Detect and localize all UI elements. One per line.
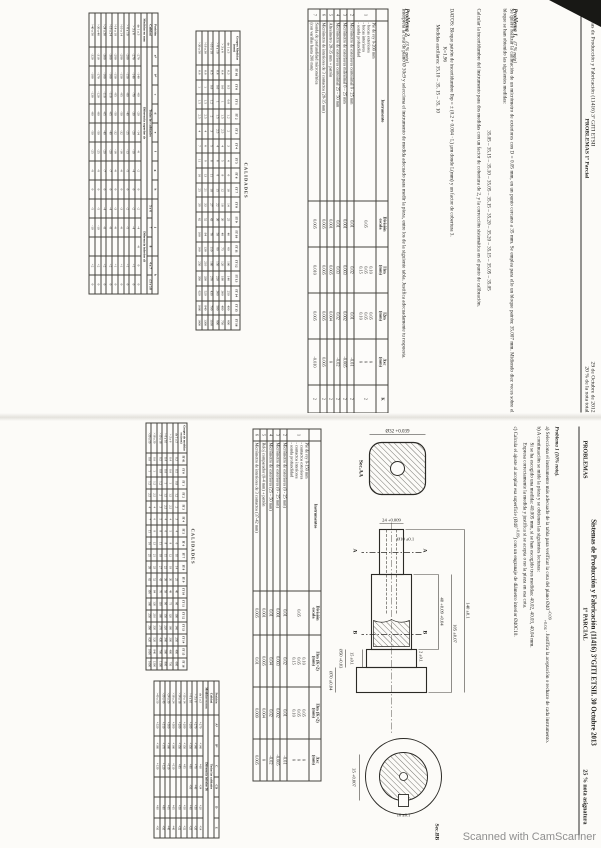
- cell: [129, 237, 135, 256]
- header-cell: I1m (K=2) (mm): [309, 635, 321, 687]
- scan-corner-shadow: [549, 0, 601, 27]
- cell: -50: [117, 104, 123, 123]
- cell: +25: [186, 817, 191, 838]
- cell: +2: [100, 256, 106, 275]
- table-row: >30 a 40-310-170-120-80-50-25-90-5-10+20: [94, 13, 100, 294]
- cell: 840: [201, 300, 207, 315]
- cell: 1: [167, 477, 172, 489]
- cell: 1000: [196, 300, 202, 315]
- cell: +95: [175, 756, 180, 777]
- cell: de 1 a 3: [172, 423, 177, 453]
- cell: 400: [172, 645, 177, 657]
- cell: -4: [135, 218, 141, 237]
- cell: 0: [89, 180, 95, 199]
- cell: +50: [181, 797, 186, 818]
- cell: -0.01: [280, 739, 287, 781]
- cell: -0.010: [307, 339, 319, 385]
- cell: 4: [145, 501, 150, 513]
- cell: -60: [135, 85, 141, 104]
- cell: > 6 a 10: [213, 31, 219, 65]
- header-cell: IT 3: [178, 501, 187, 513]
- dim-label-d40: 40 +0.09 +0.04: [439, 597, 444, 626]
- cell: -14: [135, 123, 141, 142]
- dim-label-d15: 15 ±0.1: [349, 652, 354, 665]
- cell: 0.001: [273, 591, 280, 635]
- cell: 750: [219, 315, 225, 330]
- sec-bb-label: Sec.BB: [433, 823, 439, 840]
- table-row: >18 a 24+300+160+110+65+40: [170, 681, 175, 838]
- cell: 140: [172, 621, 177, 633]
- cell: +1: [123, 256, 129, 275]
- header-cell: Instrumentos: [309, 441, 321, 591]
- table-row: 7Sonda de profundidad micrométrica (con …: [307, 9, 319, 413]
- cut-b-top: B: [421, 630, 427, 634]
- cell: 0.8: [172, 477, 177, 489]
- problema1-2013-item-c: c) Calcula el ajuste al acoplar esa supe…: [511, 426, 521, 838]
- cell: +40: [170, 817, 175, 838]
- problema1-2013-item-b2: Si se ha escogido una medida: 40.005 mm,…: [527, 426, 534, 838]
- cell: 39: [196, 197, 202, 212]
- cell: 3: [340, 9, 347, 21]
- header-cell: IT 13: [178, 621, 187, 633]
- cell: >18 a 24: [170, 681, 175, 715]
- cell: -110: [100, 85, 106, 104]
- cell: 270: [156, 621, 161, 633]
- cell: 21: [151, 549, 156, 561]
- cell: -2: [135, 199, 141, 218]
- cell: 1: [354, 9, 376, 21]
- cell: 100: [145, 585, 150, 597]
- cell: 600: [172, 657, 177, 669]
- cell: 0: [94, 180, 100, 199]
- cell: 70: [156, 585, 161, 597]
- header-cell: I2m (mm): [376, 293, 388, 339]
- dim-label-d105: 105 ±0.07: [452, 624, 457, 643]
- cell: [170, 776, 175, 797]
- cell: 0.001: [340, 201, 347, 247]
- cell: 620: [145, 633, 150, 645]
- cell: 390: [145, 621, 150, 633]
- cell: +300: [170, 715, 175, 736]
- cell: 580: [213, 300, 219, 315]
- header-cell: f: [152, 142, 158, 161]
- cell: -50: [94, 123, 100, 142]
- cell: -290: [117, 47, 123, 66]
- cell: >30 a 40: [159, 681, 164, 715]
- cell: [154, 776, 159, 797]
- cell: 0.8: [224, 94, 230, 109]
- cell: 2: [347, 385, 354, 413]
- cell: 18: [156, 549, 161, 561]
- cell: -120: [94, 85, 100, 104]
- cell: 8: [156, 525, 161, 537]
- cell: 2.5: [219, 123, 225, 138]
- cut-a-top: A: [421, 548, 427, 552]
- cell: 0.05: [354, 201, 376, 247]
- cell: 900: [162, 657, 167, 669]
- cell: -65: [106, 104, 112, 123]
- header-cell: C: [213, 756, 218, 777]
- header-cell: A*: [213, 715, 218, 736]
- cell: +1: [112, 256, 118, 275]
- cell: [100, 237, 106, 256]
- sec-aa-label: Sec.AA: [357, 459, 363, 476]
- cell: 9: [151, 525, 156, 537]
- cell: -80: [123, 85, 129, 104]
- cell: >30 a 50: [145, 423, 150, 453]
- cell: -4: [129, 161, 135, 180]
- cell: >14 a 18: [112, 13, 118, 47]
- cell: 1.2: [224, 109, 230, 124]
- cell: 1600: [196, 315, 202, 330]
- cell: 130: [201, 241, 207, 256]
- table-row: de 1 a 30.30.50.81.223461014254060100140…: [172, 423, 177, 670]
- cell: 2.5: [201, 109, 207, 124]
- cell: +50: [154, 817, 159, 838]
- cell: 180: [156, 609, 161, 621]
- cell: 27: [207, 197, 213, 212]
- cell: +2: [94, 256, 100, 275]
- cell: 18: [167, 561, 172, 573]
- cell: >30 a 40: [94, 13, 100, 47]
- cell: Pie de rey 0-200 mm - bocas exteriores -…: [354, 21, 376, 201]
- cell: 0.6: [219, 79, 225, 94]
- cell: 1: [287, 429, 309, 441]
- cell: 0: [135, 256, 141, 275]
- cell: 0.03: [333, 247, 340, 293]
- header-cell: d: [152, 104, 158, 123]
- page1-header: Sistemas de Producción y Fabricación (11…: [580, 8, 595, 412]
- page1-weight: 20 % de la nota total: [583, 366, 589, 412]
- header-cell: IT 0: [178, 465, 187, 477]
- cell: -16: [117, 142, 123, 161]
- header-cell: IT 3: [230, 123, 239, 138]
- cell: -20: [129, 123, 135, 142]
- header-cell: Grupos de medidas en (mm): [178, 423, 187, 453]
- header-cell: IT 5: [230, 153, 239, 168]
- cell: 48: [219, 226, 225, 241]
- dim-label-d24: 24 +0.009: [382, 517, 401, 522]
- cell: 0: [100, 180, 106, 199]
- table-row: CalidadTodas las calidades: [208, 681, 213, 838]
- cell: 0.005: [319, 293, 326, 339]
- problema2-body: Interpreta la cota de plano Ø 30c9 y sel…: [399, 8, 406, 412]
- cell: >24 a 30: [165, 681, 170, 715]
- header-cell: IT 7: [230, 182, 239, 197]
- cell: 480: [219, 300, 225, 315]
- cell: Micrómetro de exteriores (0 - 25 mm): [280, 441, 287, 591]
- cell: 12: [219, 182, 225, 197]
- cell: -140: [129, 66, 135, 85]
- cell: -3: [112, 199, 118, 218]
- datos-line-2: K=1.96: [440, 8, 447, 412]
- cell: 520: [201, 285, 207, 300]
- header-cell: 5 y 6: [146, 199, 152, 218]
- cell: 0.05 0.05 0.10: [354, 293, 376, 339]
- cell: -160: [106, 66, 112, 85]
- cell: +120: [159, 756, 164, 777]
- cell: 2: [326, 385, 333, 413]
- cell: +290: [175, 715, 180, 736]
- page1-title: Sistemas de Producción y Fabricación (11…: [589, 8, 595, 146]
- cell: > 3 a 6: [219, 31, 225, 65]
- cell: 330: [201, 271, 207, 286]
- table-row: de 1 a 3+270+140+60+34+20+14: [197, 681, 202, 838]
- header-cell: IT 13: [230, 271, 239, 286]
- calidades-table-2012: Grupos Medidas (mm)IT 01IT 0IT 1IT 2IT 3…: [195, 30, 240, 330]
- cell: 0.5: [224, 79, 230, 94]
- cell: 58: [162, 585, 167, 597]
- cell: 0: [117, 180, 123, 199]
- cell: -10: [129, 142, 135, 161]
- cell: 14: [172, 561, 177, 573]
- cell: 0: [117, 275, 123, 294]
- cell: 0.01: [347, 293, 354, 339]
- cell: 0.004: [259, 687, 266, 739]
- cell: 90: [162, 597, 167, 609]
- shaft-technical-drawing: Ø32 +0.039 Sec.AA A A B B: [327, 424, 483, 841]
- cell: -20: [100, 142, 106, 161]
- cell: -32: [117, 123, 123, 142]
- header-cell: Diferencia inferior Di: [202, 715, 207, 838]
- cell: 1.2: [156, 477, 161, 489]
- table-row: > 3 a 6+270+140+70+46+30+20: [192, 681, 197, 838]
- header-cell: IT 1: [230, 94, 239, 109]
- table-row: >40 a 50-320-180-130-80-50-25-90-5-10+20: [89, 13, 95, 294]
- cell: 21: [201, 182, 207, 197]
- cell: 0.001: [326, 201, 333, 247]
- cell: 150: [162, 609, 167, 621]
- cell: 0.01: [252, 635, 259, 687]
- cell: 1: [151, 465, 156, 477]
- cell: 180: [219, 271, 225, 286]
- header-cell: IT 15: [230, 300, 239, 315]
- problema1-2013-item-a: a) Selecciona el instrumento más adecuad…: [541, 426, 552, 838]
- cell: 0.005: [307, 201, 319, 247]
- cell: 43: [207, 212, 213, 227]
- cell: 2.5: [151, 489, 156, 501]
- cell: -2: [135, 161, 141, 180]
- cell: 0.002: [340, 293, 347, 339]
- cell: 300: [167, 633, 172, 645]
- calidades-caption-2012: CALIDADES: [243, 30, 248, 330]
- header-cell: b*: [152, 66, 158, 85]
- header-cell: IT 01: [230, 65, 239, 80]
- cell: +34: [197, 776, 202, 797]
- header-cell: Posición: [213, 681, 218, 715]
- header-cell: CD: [213, 776, 218, 797]
- page2-parcial-label: 1º PARCIAL: [581, 607, 587, 640]
- page1-date: 29 de Octubre de 2012: [589, 361, 595, 412]
- cell: >18 a 24: [106, 13, 112, 47]
- cell: 0.003: [273, 635, 280, 687]
- cell: 52: [151, 573, 156, 585]
- cell: -4: [129, 218, 135, 237]
- cell: 0.005: [326, 247, 333, 293]
- cell: -50: [112, 104, 118, 123]
- header-cell: Medidas en mm: [202, 681, 207, 715]
- cell: 1.5: [145, 477, 150, 489]
- header-cell: 7: [146, 218, 152, 237]
- table-row: de 1 a 3-270-140-60-20-14-6-20-2-4-600: [135, 13, 141, 294]
- cell: 1.5: [201, 94, 207, 109]
- cell: 1300: [201, 315, 207, 330]
- cell: 16: [145, 537, 150, 549]
- header-cell: 4 a 7: [146, 256, 152, 275]
- cell: 0 0 0: [354, 339, 376, 385]
- cell: 4: [266, 429, 273, 441]
- cell: 3: [172, 513, 177, 525]
- header-cell: IT 16: [230, 315, 239, 330]
- cell: -180: [89, 66, 95, 85]
- cell: +2: [89, 256, 95, 275]
- cell: 840: [151, 645, 156, 657]
- table-row: >24 a 30+300+160+110+65+40: [165, 681, 170, 838]
- cell: 180: [207, 256, 213, 271]
- cell: +14: [197, 817, 202, 838]
- cell: 8: [207, 153, 213, 168]
- table-row: Grupos de medidas en (mm)IT 01IT 0IT 1IT…: [178, 423, 187, 670]
- cell: 0.005: [319, 201, 326, 247]
- cell: 9: [201, 153, 207, 168]
- cell: 0.01: [333, 201, 340, 247]
- cell: 8: [167, 537, 172, 549]
- cell: de 1 a 3: [224, 31, 230, 65]
- header-cell: Posición: [152, 13, 158, 47]
- cell: 0.5: [172, 465, 177, 477]
- cell: 700: [207, 300, 213, 315]
- cell: 0: [89, 275, 95, 294]
- cell: > 3 a 6: [129, 13, 135, 47]
- problema1-2013-block: Problema 1 (10% nota). a) Selecciona el …: [511, 426, 559, 838]
- cell: -270: [135, 47, 141, 66]
- cell: 14: [224, 197, 230, 212]
- table-row: Medidas en mmDiferencia inferior Di: [202, 681, 207, 838]
- cell: 0: [135, 275, 141, 294]
- table-row: 3Micrómetro de exteriores (0 - 25 mm)0.0…: [273, 429, 280, 781]
- cell: +140: [192, 735, 197, 756]
- header-cell: IT 9: [178, 573, 187, 585]
- cell: 18: [219, 197, 225, 212]
- header-cell: Calidad: [208, 681, 213, 715]
- cell: 7: [307, 9, 319, 21]
- cell: 48: [167, 585, 172, 597]
- table-row: >10 a 180.50.81.223581118274370110180270…: [207, 31, 213, 330]
- table-row: Medidas en mmDiferencia superior dsDifer…: [140, 13, 146, 294]
- cell: +280: [186, 715, 191, 736]
- header-cell: IT 14: [178, 633, 187, 645]
- cell: 160: [145, 597, 150, 609]
- cell: 5: [156, 513, 161, 525]
- cell: 0.01: [347, 201, 354, 247]
- header-cell: División escala: [376, 201, 388, 247]
- problema1-paragraph-2: Calcular la incertidumbre del instrument…: [474, 8, 481, 412]
- cell: 400: [224, 300, 230, 315]
- cell: 1.5: [167, 489, 172, 501]
- cell: 0.04: [266, 635, 273, 687]
- header-cell: IT 2: [230, 109, 239, 124]
- cell: 0.01: [280, 591, 287, 635]
- cell: 2: [354, 385, 376, 413]
- cell: 3: [273, 429, 280, 441]
- cell: 1: [145, 465, 150, 477]
- cell: 3: [207, 123, 213, 138]
- dim-label-d50: Ø50 +0.03: [338, 648, 343, 668]
- cell: +65: [165, 797, 170, 818]
- cell: -4: [106, 199, 112, 218]
- problema1-2013-label: Problema 1 (10% nota).: [552, 426, 559, 838]
- cell: -110: [106, 85, 112, 104]
- cell: 5: [326, 9, 333, 21]
- cell: 0.6: [145, 453, 150, 465]
- header-cell: IT 4: [230, 138, 239, 153]
- cell: [175, 776, 180, 797]
- cell: 0: [106, 180, 112, 199]
- cell: 100: [224, 256, 230, 271]
- header-cell: Diferencia inferior di: [140, 199, 146, 294]
- cell: +80: [154, 797, 159, 818]
- cell: 22: [213, 197, 219, 212]
- cell: +65: [170, 797, 175, 818]
- cell: [165, 776, 170, 797]
- cell: Micrómetro de interiores de 3 contactos …: [252, 441, 259, 591]
- cell: -40: [100, 123, 106, 142]
- cell: 360: [213, 285, 219, 300]
- header-cell: I1m (mm): [376, 247, 388, 293]
- cell: 0.4: [167, 453, 172, 465]
- cell: Pie de rey 0-150 mm - contactos exterior…: [287, 441, 309, 591]
- cell: 62: [196, 212, 202, 227]
- cell: -20: [106, 142, 112, 161]
- table-row: > 6 a 10-280-150-80-40-25-13-50-2-5+10: [123, 13, 129, 294]
- table-row: 4Micrómetro de exteriores centesimal 25 …: [333, 9, 340, 413]
- cell: 84: [151, 585, 156, 597]
- cell: 36: [162, 573, 167, 585]
- header-cell: IT 6: [178, 537, 187, 549]
- cell: 120: [219, 256, 225, 271]
- cell: 110: [156, 597, 161, 609]
- header-cell: IT 12: [178, 609, 187, 621]
- cell: -8: [106, 218, 112, 237]
- header-cell: I3m (K=2) (mm): [309, 687, 321, 739]
- cell: 0.02: [266, 687, 273, 739]
- header-cell: IT 5: [178, 525, 187, 537]
- cell: +46: [192, 776, 197, 797]
- cell: 1300: [151, 657, 156, 669]
- cell: Reloj comparador (0-4 mm) + patrón: [259, 441, 266, 591]
- cell: -25: [94, 142, 100, 161]
- header-cell: IT 6: [230, 168, 239, 183]
- cell: 1.5: [162, 489, 167, 501]
- table-row: > 6 a 10+280+150+80+56+40+25: [186, 681, 191, 838]
- cell: > 3 a 6: [192, 681, 197, 715]
- table-row: >14 a 18+290+150+95+50+32: [175, 681, 180, 838]
- tolerance-sub: +0.04: [542, 619, 547, 629]
- cell: 30: [167, 573, 172, 585]
- cell: 4: [224, 153, 230, 168]
- cell: >10 a 14: [181, 681, 186, 715]
- cell: 1: [196, 79, 202, 94]
- cell: -160: [100, 66, 106, 85]
- cell: -150: [123, 66, 129, 85]
- cell: [106, 237, 112, 256]
- cell: 180: [167, 621, 172, 633]
- cell: -170: [94, 66, 100, 85]
- cell: > 3 a 6: [167, 423, 172, 453]
- header-cell: ≤3 y ≥8: [146, 275, 152, 294]
- problema1-2013-item-b3: Expresa correctamente la medida y justif…: [520, 426, 527, 838]
- cell: 270: [207, 271, 213, 286]
